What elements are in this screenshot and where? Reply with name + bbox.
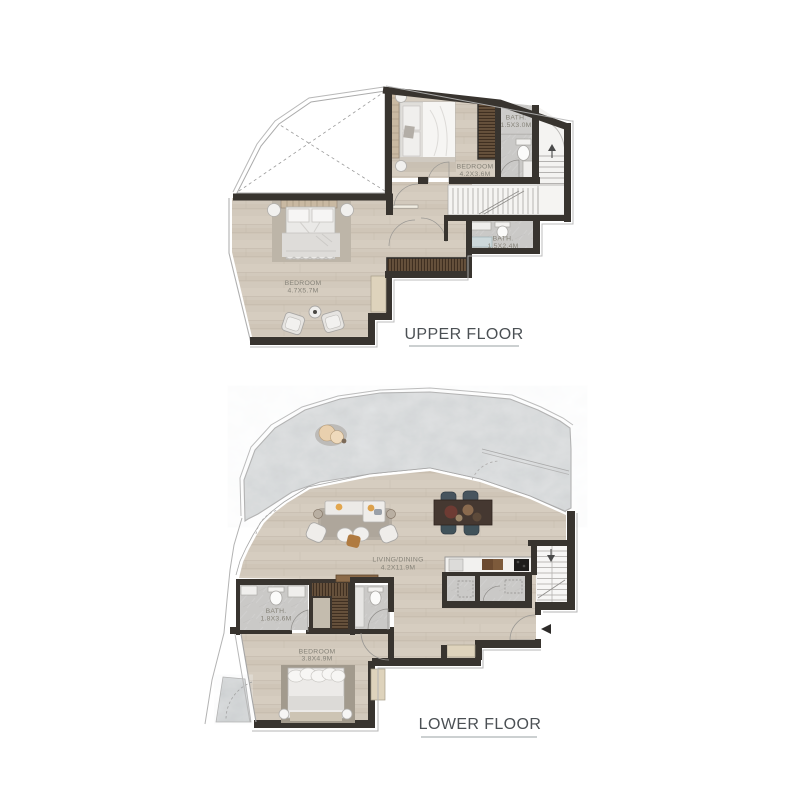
svg-text:BEDROOM: BEDROOM <box>285 280 322 287</box>
svg-text:3.8X4.9M: 3.8X4.9M <box>301 656 332 663</box>
svg-text:4.2X11.9M: 4.2X11.9M <box>381 565 416 572</box>
svg-text:LOWER FLOOR: LOWER FLOOR <box>419 716 542 733</box>
svg-text:1.8X3.6M: 1.8X3.6M <box>260 616 291 623</box>
svg-text:4.7X5.7M: 4.7X5.7M <box>287 288 318 295</box>
svg-text:4.2X3.6M: 4.2X3.6M <box>459 171 490 178</box>
svg-text:BEDROOM: BEDROOM <box>457 164 494 171</box>
svg-text:UPPER FLOOR: UPPER FLOOR <box>404 326 523 343</box>
svg-text:BEDROOM: BEDROOM <box>299 649 336 656</box>
svg-text:BATH.: BATH. <box>266 608 287 615</box>
svg-text:1.5X3.0M: 1.5X3.0M <box>500 122 531 129</box>
svg-text:LIVING/DINING: LIVING/DINING <box>372 557 423 564</box>
svg-text:1.5X2.4M: 1.5X2.4M <box>487 243 518 250</box>
svg-text:BATH.: BATH. <box>493 236 514 243</box>
svg-text:BATH.: BATH. <box>506 115 527 122</box>
